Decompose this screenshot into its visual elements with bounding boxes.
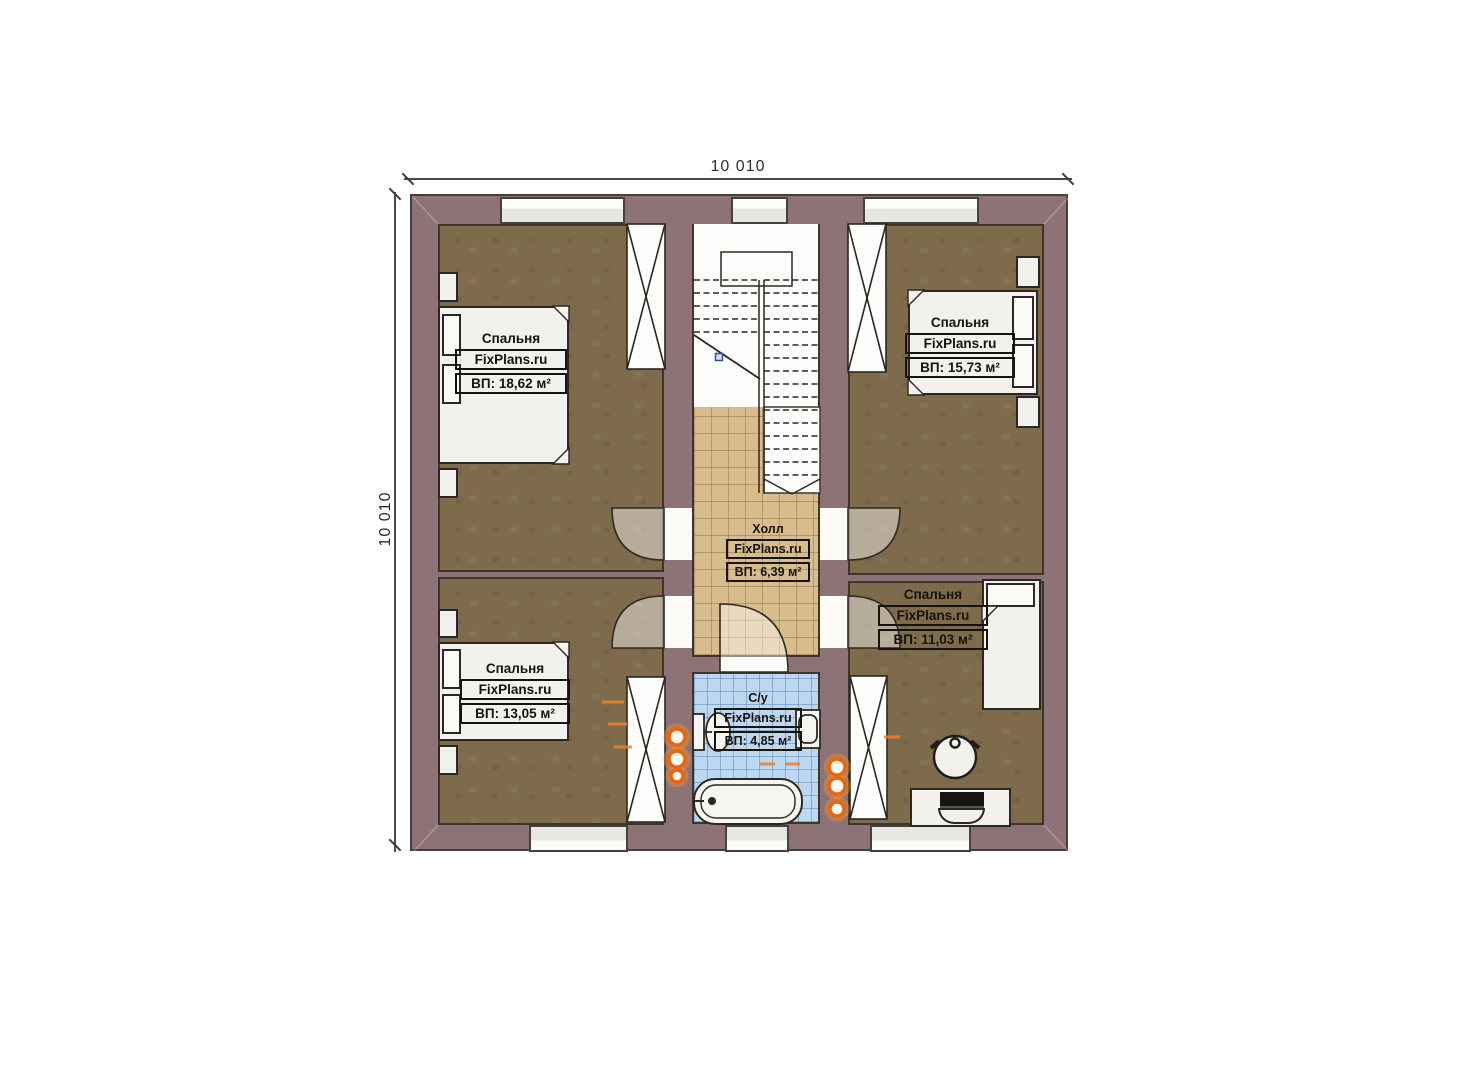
room-label-bedroom-top-right: Спальня FixPlans.ru ВП: 15,73 м² bbox=[905, 315, 1015, 378]
room-brand: FixPlans.ru bbox=[714, 708, 802, 728]
room-brand: FixPlans.ru bbox=[460, 679, 570, 700]
dimension-top: 10 010 bbox=[398, 158, 1078, 186]
door-arc-hall-to-bedroom-top-right bbox=[848, 508, 900, 560]
room-label-hall: Холл FixPlans.ru ВП: 6,39 м² bbox=[726, 522, 810, 582]
door-arc-bathroom bbox=[720, 604, 788, 672]
dimension-left-value: 10 010 bbox=[377, 489, 395, 549]
radiator-icon bbox=[669, 729, 685, 745]
bathtub bbox=[694, 779, 802, 824]
dimension-top-line bbox=[404, 178, 1072, 180]
door-gap bbox=[820, 508, 848, 560]
door-arc-hall-to-bedroom-top-left bbox=[612, 508, 664, 560]
dimension-top-value: 10 010 bbox=[711, 158, 766, 176]
radiator-icon bbox=[671, 770, 683, 782]
stool-round bbox=[931, 736, 979, 778]
room-brand: FixPlans.ru bbox=[878, 605, 988, 626]
room-area: ВП: 11,03 м² bbox=[878, 629, 988, 650]
staircase bbox=[694, 252, 820, 494]
room-label-bedroom-bottom-right: Спальня FixPlans.ru ВП: 11,03 м² bbox=[878, 587, 988, 650]
radiator-icon bbox=[829, 759, 845, 775]
room-label-bedroom-top-left: Спальня FixPlans.ru ВП: 18,62 м² bbox=[455, 331, 567, 394]
room-label-bathroom: С/у FixPlans.ru ВП: 4,85 м² bbox=[714, 691, 802, 751]
room-brand: FixPlans.ru bbox=[726, 539, 810, 559]
floor-plan: Спальня FixPlans.ru ВП: 18,62 м² Спальня… bbox=[410, 194, 1068, 851]
door-gap bbox=[820, 596, 848, 648]
room-name: Спальня bbox=[482, 331, 540, 346]
radiator-icon bbox=[669, 751, 685, 767]
radiator-icon bbox=[830, 802, 844, 816]
room-area: ВП: 6,39 м² bbox=[726, 562, 810, 582]
radiator-icon bbox=[829, 778, 845, 794]
room-brand: FixPlans.ru bbox=[455, 349, 567, 370]
door-gap bbox=[664, 596, 692, 648]
room-area: ВП: 4,85 м² bbox=[714, 731, 802, 751]
room-label-bedroom-bottom-left: Спальня FixPlans.ru ВП: 13,05 м² bbox=[460, 661, 570, 724]
room-name: Спальня bbox=[904, 587, 962, 602]
room-area: ВП: 15,73 м² bbox=[905, 357, 1015, 378]
floor-plan-page: 10 010 10 010 bbox=[0, 0, 1473, 1080]
door-arc-hall-to-bedroom-bottom-left bbox=[612, 596, 664, 648]
room-name: Спальня bbox=[486, 661, 544, 676]
room-brand: FixPlans.ru bbox=[905, 333, 1015, 354]
room-name: Спальня bbox=[931, 315, 989, 330]
room-name: Холл bbox=[752, 522, 783, 536]
vent-shaft-top-right bbox=[848, 224, 886, 372]
room-area: ВП: 18,62 м² bbox=[455, 373, 567, 394]
room-name: С/у bbox=[748, 691, 767, 705]
vent-shaft-bottom-left bbox=[627, 677, 665, 822]
vent-shaft-bottom-right bbox=[850, 676, 887, 819]
dimension-left: 10 010 bbox=[370, 188, 398, 858]
door-gap bbox=[664, 508, 692, 560]
room-area: ВП: 13,05 м² bbox=[460, 703, 570, 724]
vent-shaft-top-left bbox=[627, 224, 665, 369]
